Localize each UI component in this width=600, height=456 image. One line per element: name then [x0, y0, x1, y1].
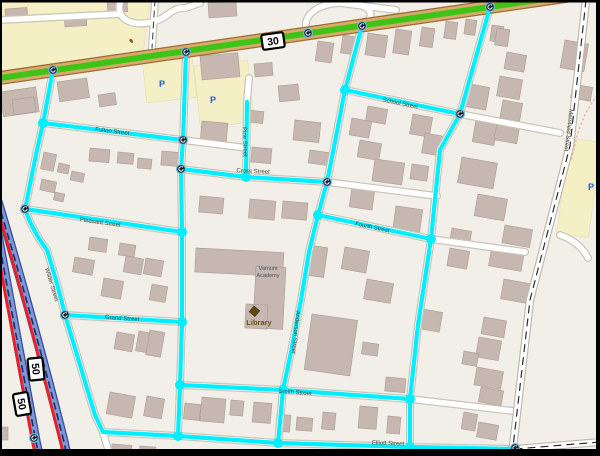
- library-label: Library: [246, 318, 272, 327]
- academy-label-line1: Varnum: [259, 266, 278, 272]
- route-node-icon[interactable]: [182, 48, 191, 57]
- route-node-icon[interactable]: [179, 136, 188, 145]
- shield-30: 30: [261, 32, 285, 50]
- map-viewport[interactable]: Fulton Street Pleasant Street Cross Stre…: [0, 0, 600, 456]
- route-node-icon[interactable]: [358, 22, 367, 31]
- shield-50-text: 50: [14, 397, 28, 411]
- shield-50-lower: 50: [13, 392, 32, 416]
- shield-50-text: 50: [29, 363, 42, 376]
- parking-icon: P: [159, 79, 165, 89]
- street-label-pine: Pine Street: [240, 127, 247, 157]
- route-node-icon[interactable]: [456, 110, 465, 119]
- route-node-icon[interactable]: [304, 29, 313, 38]
- shield-50-upper: 50: [27, 357, 44, 380]
- route-node-icon[interactable]: [61, 311, 70, 320]
- route-node-icon[interactable]: [30, 434, 39, 443]
- route-node-icon[interactable]: [21, 205, 30, 214]
- route-node-icon[interactable]: [49, 66, 58, 75]
- street-label-elliott: Elliott Street: [372, 440, 405, 447]
- academy-label-line2: Academy: [257, 273, 280, 279]
- parking-icon: P: [588, 182, 594, 192]
- shield-30-text: 30: [266, 35, 279, 49]
- parking-icon: P: [210, 95, 216, 105]
- route-node-icon[interactable]: [486, 3, 495, 12]
- map-canvas[interactable]: Fulton Street Pleasant Street Cross Stre…: [0, 0, 600, 456]
- route-node-icon[interactable]: [177, 165, 186, 174]
- route-node-icon[interactable]: [323, 178, 332, 187]
